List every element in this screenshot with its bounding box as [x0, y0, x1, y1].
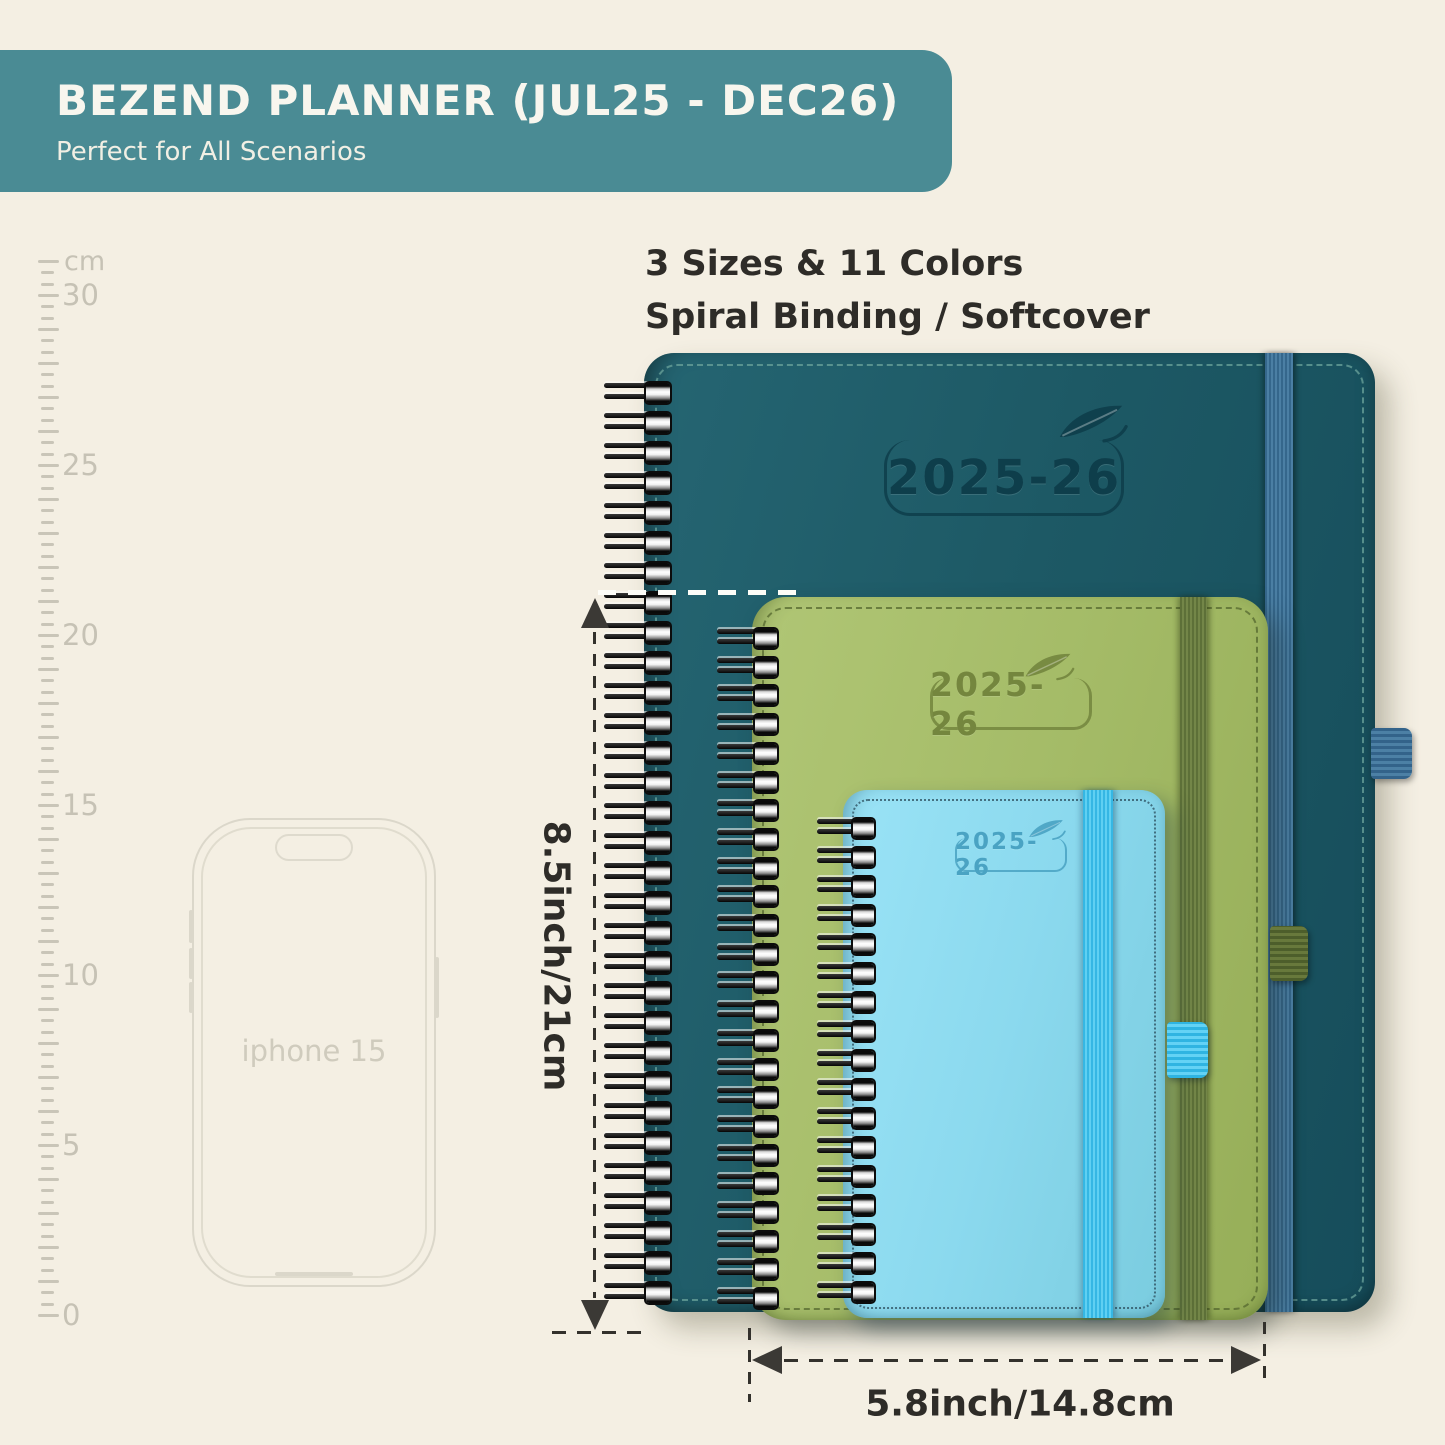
ruler-tick — [41, 759, 54, 762]
ruler-cm-label: 20 — [62, 618, 99, 652]
ruler-tick — [38, 702, 59, 705]
coil-clip — [646, 833, 670, 853]
coil-clip — [755, 801, 777, 820]
coil-wire — [604, 563, 652, 568]
spiral-coil — [604, 1133, 670, 1153]
coil-clip — [755, 1060, 777, 1079]
coil-wire — [604, 1054, 652, 1059]
ruler-tick — [41, 815, 54, 818]
coil-wire — [604, 544, 652, 549]
ruler-tick — [41, 385, 54, 388]
spiral-coil — [604, 683, 670, 703]
coil-clip — [646, 383, 670, 403]
coil-wire — [604, 634, 652, 639]
spiral-coil — [604, 623, 670, 643]
arrow-right-icon — [1231, 1346, 1261, 1374]
ruler-tick — [41, 351, 54, 354]
coil-clip — [755, 1289, 777, 1308]
spiral-coil — [817, 1283, 874, 1302]
spiral-coil — [817, 877, 874, 896]
elastic-band-teal — [1265, 353, 1293, 1312]
ruler-tick — [41, 1235, 54, 1238]
spiral-coil — [604, 653, 670, 673]
ruler-tick — [38, 600, 59, 603]
ruler-tick — [41, 1065, 54, 1068]
coil-clip — [646, 593, 670, 613]
coil-clip — [853, 1196, 874, 1215]
coil-wire — [604, 994, 652, 999]
coil-clip — [853, 935, 874, 954]
year-text: 2025-26 — [887, 450, 1121, 506]
coil-wire — [604, 1264, 652, 1269]
ruler-tick — [41, 1121, 54, 1124]
ruler-tick — [41, 679, 54, 682]
coil-wire — [604, 473, 652, 478]
spiral-coil — [604, 833, 670, 853]
coil-wire — [604, 784, 652, 789]
coil-clip — [646, 1043, 670, 1063]
ruler-cm-label: 30 — [62, 278, 99, 312]
coil-wire — [604, 1174, 652, 1179]
coil-clip — [755, 715, 777, 734]
spiral-coil — [717, 973, 777, 992]
coil-wire — [604, 1043, 652, 1048]
ruler-tick — [41, 373, 54, 376]
coil-clip — [646, 1013, 670, 1033]
feather-icon — [1052, 400, 1130, 448]
pen-loop-teal — [1371, 728, 1412, 779]
ruler-tick — [38, 328, 59, 331]
spiral-coil — [817, 1051, 874, 1070]
ruler-tick — [41, 1303, 54, 1306]
coil-clip — [853, 1167, 874, 1186]
ruler-tick — [41, 305, 54, 308]
spiral-coil — [717, 744, 777, 763]
coil-clip — [853, 906, 874, 925]
spiral-coil — [717, 629, 777, 648]
coil-wire — [604, 1223, 652, 1228]
ruler-tick — [41, 577, 54, 580]
spiral-coil — [817, 819, 874, 838]
ruler-tick — [38, 294, 59, 297]
spiral-coil — [817, 1225, 874, 1244]
ruler-tick — [41, 521, 54, 524]
ruler-tick — [38, 1314, 59, 1317]
ruler-tick — [38, 838, 59, 841]
coil-wire — [604, 814, 652, 819]
coil-clip — [853, 1051, 874, 1070]
coil-wire — [604, 803, 652, 808]
spiral-coil — [604, 563, 670, 583]
coil-clip — [755, 1174, 777, 1193]
ruler-tick — [41, 929, 54, 932]
coil-clip — [755, 1203, 777, 1222]
coil-wire — [604, 1283, 652, 1288]
ruler-tick — [38, 1144, 59, 1147]
ruler-tick — [41, 1155, 54, 1158]
arrow-left-icon — [752, 1346, 782, 1374]
coil-clip — [853, 993, 874, 1012]
coil-clip — [646, 1283, 670, 1303]
arrow-up-icon — [581, 598, 609, 628]
ruler-tick — [38, 668, 59, 671]
coil-clip — [853, 1283, 874, 1302]
ruler-tick — [41, 895, 54, 898]
coil-clip — [755, 1031, 777, 1050]
spiral-coil — [604, 1223, 670, 1243]
coil-clip — [755, 658, 777, 677]
spiral-coil — [717, 916, 777, 935]
ruler-tick — [38, 1280, 59, 1283]
coil-wire — [604, 773, 652, 778]
coil-wire — [604, 1294, 652, 1299]
coil-clip — [646, 923, 670, 943]
coil-wire — [604, 983, 652, 988]
coil-wire — [604, 1133, 652, 1138]
pen-loop-blue — [1167, 1022, 1208, 1078]
coil-clip — [646, 743, 670, 763]
width-right-marker-line — [1263, 1322, 1266, 1384]
ruler-tick — [41, 1201, 54, 1204]
coil-wire — [604, 1103, 652, 1108]
coil-clip — [646, 1223, 670, 1243]
coil-clip — [646, 443, 670, 463]
ruler-tick — [41, 1133, 54, 1136]
ruler-tick — [38, 1110, 59, 1113]
ruler-tick — [41, 963, 54, 966]
ruler-tick — [41, 611, 54, 614]
coil-clip — [646, 653, 670, 673]
spiral-coil — [817, 1022, 874, 1041]
coil-wire — [604, 1144, 652, 1149]
elastic-band-green — [1180, 597, 1207, 1320]
coil-clip — [646, 1253, 670, 1273]
ruler-tick — [38, 804, 59, 807]
width-dimension-label: 5.8inch/14.8cm — [865, 1384, 1175, 1425]
coil-wire — [604, 454, 652, 459]
spiral-coil — [717, 686, 777, 705]
spiral-coil — [604, 593, 670, 613]
coil-clip — [755, 1260, 777, 1279]
spiral-coil — [717, 1060, 777, 1079]
coil-clip — [646, 773, 670, 793]
ruler-cm-label: 25 — [62, 448, 99, 482]
spiral-coil — [604, 713, 670, 733]
spiral-coil — [717, 1146, 777, 1165]
spiral-coil — [604, 773, 670, 793]
spiral-coil — [604, 1043, 670, 1063]
year-emboss-medium: 2025-26 — [930, 678, 1092, 730]
spiral-coil — [604, 383, 670, 403]
coil-clip — [853, 1225, 874, 1244]
ruler-tick — [41, 1223, 54, 1226]
spiral-coil — [604, 803, 670, 823]
year-emboss-large: 2025-26 — [884, 440, 1124, 516]
ruler-cm-label: 15 — [62, 788, 99, 822]
coil-wire — [604, 893, 652, 898]
coil-wire — [604, 503, 652, 508]
coil-wire — [604, 443, 652, 448]
coil-wire — [604, 1234, 652, 1239]
coil-clip — [755, 859, 777, 878]
coil-wire — [604, 1024, 652, 1029]
coil-clip — [646, 1103, 670, 1123]
coil-wire — [604, 1204, 652, 1209]
ruler-tick — [41, 317, 54, 320]
ruler-tick — [41, 985, 54, 988]
ruler-tick — [38, 940, 59, 943]
spiral-coil — [604, 1013, 670, 1033]
ruler-tick — [41, 441, 54, 444]
ruler-tick — [41, 475, 54, 478]
coil-clip — [646, 893, 670, 913]
spiral-coil — [604, 1283, 670, 1303]
spiral-coil — [817, 1196, 874, 1215]
spiral-coil — [717, 1289, 777, 1308]
coil-clip — [646, 473, 670, 493]
spiral-coil — [717, 715, 777, 734]
spiral-coil — [604, 743, 670, 763]
coil-wire — [604, 413, 652, 418]
coil-wire — [604, 743, 652, 748]
ruler-tick — [41, 407, 54, 410]
coil-clip — [755, 629, 777, 648]
ruler-tick — [38, 498, 59, 501]
coil-clip — [646, 953, 670, 973]
coil-clip — [755, 686, 777, 705]
spiral-coil — [717, 801, 777, 820]
coil-wire — [604, 694, 652, 699]
coil-wire — [604, 953, 652, 958]
coil-wire — [604, 683, 652, 688]
ruler-tick — [41, 589, 54, 592]
spiral-coil — [717, 773, 777, 792]
coil-wire — [604, 923, 652, 928]
ruler-tick — [41, 1269, 54, 1272]
spiral-coil — [604, 443, 670, 463]
spiral-coil — [817, 848, 874, 867]
height-bottom-marker-line — [552, 1331, 648, 1334]
coil-clip — [755, 887, 777, 906]
coil-clip — [646, 1163, 670, 1183]
spiral-coil — [717, 1260, 777, 1279]
coil-wire — [604, 604, 652, 609]
ruler-tick — [41, 1189, 54, 1192]
spiral-coil — [604, 863, 670, 883]
coil-clip — [646, 623, 670, 643]
spiral-coil — [817, 1254, 874, 1273]
coil-clip — [646, 503, 670, 523]
ruler-tick — [38, 770, 59, 773]
coil-wire — [604, 844, 652, 849]
spiral-coil — [604, 1253, 670, 1273]
height-dimension-label: 8.5inch/21cm — [536, 821, 577, 1092]
ruler-tick — [41, 997, 54, 1000]
spiral-coil — [717, 658, 777, 677]
ruler-tick — [41, 691, 54, 694]
coil-clip — [853, 819, 874, 838]
spiral-coil — [604, 1073, 670, 1093]
coil-clip — [646, 863, 670, 883]
spiral-coil — [717, 1002, 777, 1021]
height-dimension-line — [593, 632, 596, 1298]
spiral-coil — [604, 953, 670, 973]
ruler-tick — [41, 861, 54, 864]
coil-wire — [604, 724, 652, 729]
ruler-tick — [41, 827, 54, 830]
coil-clip — [755, 744, 777, 763]
ruler-tick — [38, 872, 59, 875]
spiral-coil — [817, 993, 874, 1012]
ruler-unit-label: cm — [64, 246, 105, 277]
coil-wire — [604, 904, 652, 909]
arrow-down-icon — [581, 1300, 609, 1330]
coil-clip — [853, 848, 874, 867]
spiral-coil — [604, 1193, 670, 1213]
coil-clip — [755, 1002, 777, 1021]
coil-clip — [755, 773, 777, 792]
ruler-tick — [41, 657, 54, 660]
coil-wire — [604, 653, 652, 658]
ruler-tick — [38, 396, 59, 399]
ruler-tick — [38, 736, 59, 739]
ruler-tick — [38, 532, 59, 535]
spiral-coil — [817, 935, 874, 954]
spiral-coil — [817, 1109, 874, 1128]
coil-wire — [604, 833, 652, 838]
product-size-infographic: BEZEND PLANNER (JUL25 - DEC26) Perfect f… — [0, 0, 1445, 1445]
ruler-tick — [41, 1053, 54, 1056]
coil-clip — [646, 563, 670, 583]
coil-clip — [755, 1146, 777, 1165]
spiral-coil — [604, 1103, 670, 1123]
coil-clip — [755, 830, 777, 849]
ruler-tick — [41, 781, 54, 784]
width-dimension-line — [784, 1359, 1232, 1362]
ruler-cm-label: 0 — [62, 1298, 80, 1332]
ruler-tick — [41, 1167, 54, 1170]
spiral-coil — [717, 1174, 777, 1193]
spiral-coil — [717, 1031, 777, 1050]
coil-clip — [853, 964, 874, 983]
coil-wire — [604, 664, 652, 669]
ruler-tick — [41, 487, 54, 490]
coil-clip — [646, 1073, 670, 1093]
coil-wire — [604, 484, 652, 489]
ruler-tick — [41, 1099, 54, 1102]
coil-clip — [646, 803, 670, 823]
ruler-tick — [38, 1246, 59, 1249]
ruler-tick — [41, 623, 54, 626]
spiral-coil — [604, 1163, 670, 1183]
ruler-tick — [41, 713, 54, 716]
spiral-coil — [717, 859, 777, 878]
coil-wire — [604, 934, 652, 939]
coil-clip — [755, 916, 777, 935]
ruler-tick — [38, 260, 59, 263]
coil-clip — [646, 983, 670, 1003]
coil-wire — [604, 1253, 652, 1258]
spiral-coil — [717, 1232, 777, 1251]
pen-loop-green — [1270, 926, 1308, 981]
coil-clip — [853, 1080, 874, 1099]
coil-wire — [604, 1163, 652, 1168]
coil-wire — [604, 754, 652, 759]
ruler-tick — [41, 555, 54, 558]
year-text: 2025-26 — [930, 665, 1092, 743]
ruler-tick — [41, 645, 54, 648]
coil-wire — [604, 863, 652, 868]
year-emboss-small: 2025-26 — [955, 838, 1067, 872]
coil-clip — [646, 413, 670, 433]
ruler-tick — [41, 793, 54, 796]
ruler-tick — [38, 1178, 59, 1181]
spiral-coil — [817, 964, 874, 983]
ruler-tick — [38, 362, 59, 365]
ruler-tick — [41, 1257, 54, 1260]
coil-wire — [604, 1073, 652, 1078]
ruler-tick — [38, 566, 59, 569]
coil-clip — [853, 1109, 874, 1128]
spiral-coil — [717, 887, 777, 906]
ruler-tick — [38, 464, 59, 467]
spiral-coil — [817, 1138, 874, 1157]
ruler-tick — [41, 883, 54, 886]
coil-clip — [646, 683, 670, 703]
ruler-tick — [38, 1212, 59, 1215]
ruler-tick — [41, 917, 54, 920]
ruler-cm-label: 10 — [62, 958, 99, 992]
spiral-coil — [717, 945, 777, 964]
spiral-coil — [604, 983, 670, 1003]
coil-clip — [853, 1022, 874, 1041]
spiral-coil — [604, 503, 670, 523]
spiral-coil — [817, 1080, 874, 1099]
ruler-tick — [41, 1087, 54, 1090]
coil-wire — [604, 874, 652, 879]
coil-clip — [646, 533, 670, 553]
ruler-cm-label: 5 — [62, 1128, 80, 1162]
spiral-coil — [717, 830, 777, 849]
spiral-coil — [604, 413, 670, 433]
ruler-tick — [41, 271, 54, 274]
ruler-tick — [41, 1291, 54, 1294]
spiral-coil — [817, 1167, 874, 1186]
coil-clip — [853, 1138, 874, 1157]
coil-wire — [604, 623, 652, 628]
coil-wire — [604, 1084, 652, 1089]
width-left-marker-line — [748, 1328, 751, 1402]
coil-wire — [604, 574, 652, 579]
coil-clip — [646, 713, 670, 733]
ruler-tick — [41, 339, 54, 342]
coil-wire — [604, 424, 652, 429]
ruler-tick — [41, 283, 54, 286]
ruler-tick — [38, 634, 59, 637]
spiral-coil — [717, 1203, 777, 1222]
coil-wire — [604, 533, 652, 538]
coil-wire — [604, 1114, 652, 1119]
ruler-tick — [41, 1031, 54, 1034]
coil-clip — [755, 973, 777, 992]
ruler-tick — [41, 543, 54, 546]
height-top-marker-line — [598, 590, 803, 595]
coil-clip — [646, 1133, 670, 1153]
coil-wire — [604, 514, 652, 519]
spiral-coil — [817, 906, 874, 925]
coil-wire — [604, 964, 652, 969]
spiral-coil — [717, 1088, 777, 1107]
